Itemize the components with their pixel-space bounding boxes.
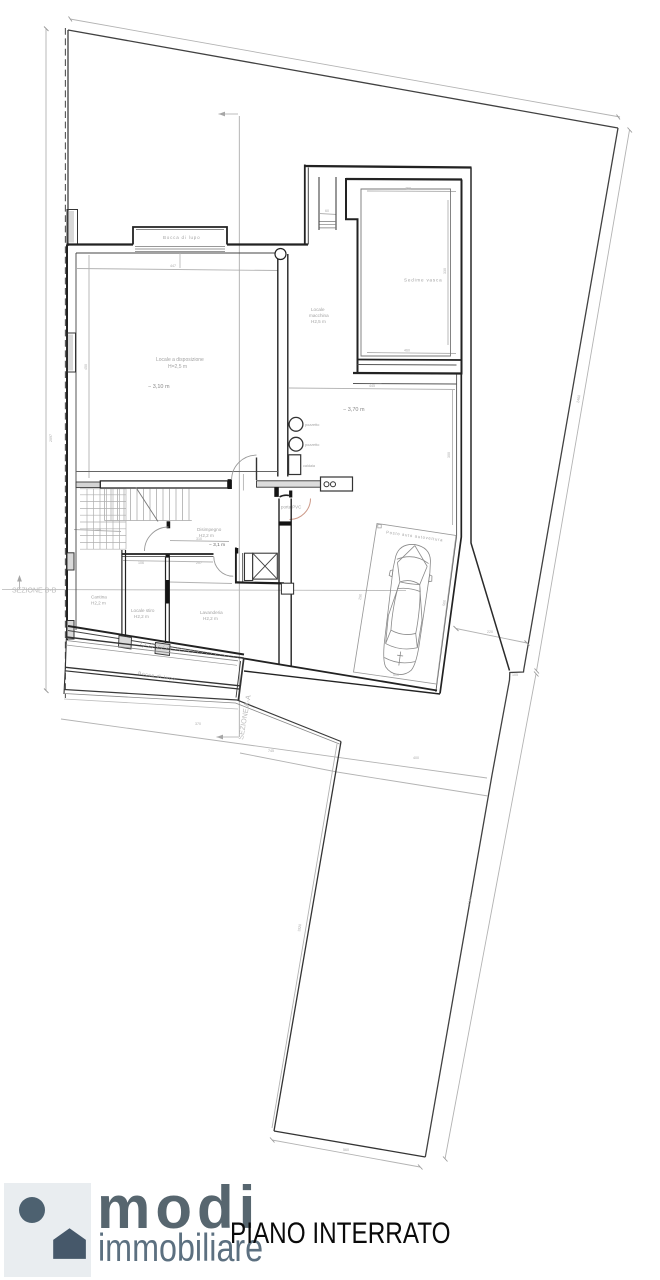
svg-text:105: 105 [512,673,518,677]
svg-text:Disimpegno: Disimpegno [197,527,222,532]
svg-text:macchina: macchina [309,313,329,318]
svg-text:300: 300 [447,452,451,458]
svg-text:460: 460 [405,187,411,191]
svg-text:Posto auto autovettura: Posto auto autovettura [386,530,444,543]
svg-text:Cantina: Cantina [91,595,107,600]
svg-text:− 3,1 m: − 3,1 m [209,542,225,548]
svg-text:2097: 2097 [49,434,53,442]
svg-text:500: 500 [442,600,447,606]
svg-text:H2,5 m: H2,5 m [311,319,326,324]
svg-text:Lavanderia: Lavanderia [200,610,223,615]
svg-text:60: 60 [325,209,329,213]
svg-text:250: 250 [358,594,363,600]
svg-text:370: 370 [195,722,201,726]
svg-text:100: 100 [95,528,101,532]
svg-text:106: 106 [138,561,144,565]
svg-text:SEZIONE B-B: SEZIONE B-B [12,588,57,595]
svg-text:310: 310 [196,537,202,541]
svg-text:H=2,5 m: H=2,5 m [168,364,187,370]
svg-text:450: 450 [84,364,88,370]
svg-text:2460: 2460 [576,395,581,404]
svg-text:pozzetto: pozzetto [305,423,319,427]
svg-text:H2,2 m: H2,2 m [91,601,106,606]
svg-text:Locale stiro: Locale stiro [131,608,155,613]
svg-text:Bocca di lupo: Bocca di lupo [138,671,176,682]
svg-text:− 3,10 m: − 3,10 m [148,384,170,390]
svg-text:2140: 2140 [467,897,473,906]
svg-text:460: 460 [404,349,410,353]
svg-text:− 3,70 m: − 3,70 m [343,407,365,413]
svg-text:Bocca di lupo: Bocca di lupo [163,235,200,240]
svg-text:pozzetto: pozzetto [305,443,319,447]
svg-text:400: 400 [413,756,419,760]
svg-text:caldaia: caldaia [303,464,316,468]
svg-text:447: 447 [170,264,176,268]
svg-text:Locale a disposizione: Locale a disposizione [156,357,204,363]
svg-text:560: 560 [343,1148,349,1152]
svg-text:220: 220 [487,630,493,634]
svg-text:1920: 1920 [297,924,302,933]
svg-text:H2,2 m: H2,2 m [203,616,218,621]
svg-text:Sedime vasca: Sedime vasca [404,278,442,283]
svg-text:500: 500 [393,673,399,677]
svg-text:H2,2 m: H2,2 m [134,614,149,619]
svg-text:Locale: Locale [311,307,325,312]
svg-text:745: 745 [268,749,274,753]
svg-text:207: 207 [196,561,202,565]
svg-text:445: 445 [369,384,375,388]
svg-text:330: 330 [443,268,447,274]
